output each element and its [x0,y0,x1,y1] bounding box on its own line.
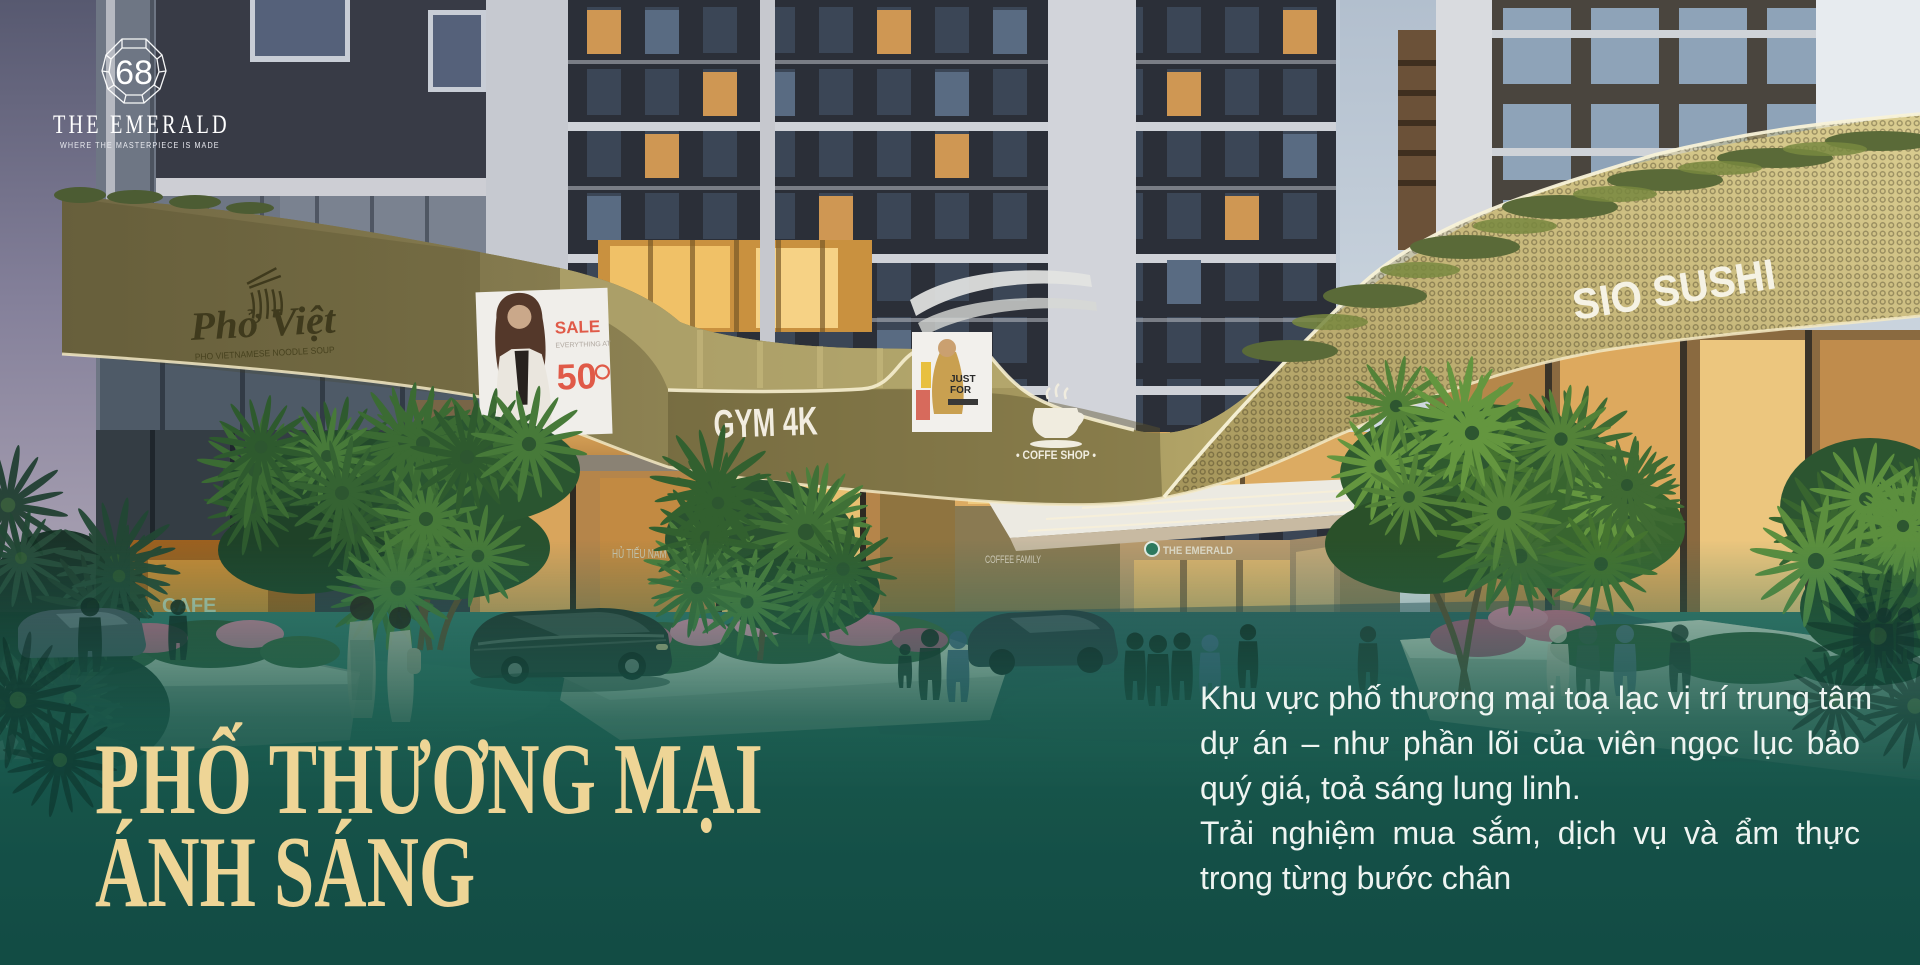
svg-text:FOR: FOR [950,385,972,396]
svg-text:GYM 4K: GYM 4K [713,399,819,447]
svg-text:Phở Việt: Phở Việt [188,296,338,349]
svg-text:• COFFE SHOP •: • COFFE SHOP • [1016,448,1096,462]
svg-text:JUST: JUST [950,374,976,385]
svg-text:SALE: SALE [554,317,600,338]
svg-text:68: 68 [115,54,153,92]
svg-text:50: 50 [556,355,597,397]
